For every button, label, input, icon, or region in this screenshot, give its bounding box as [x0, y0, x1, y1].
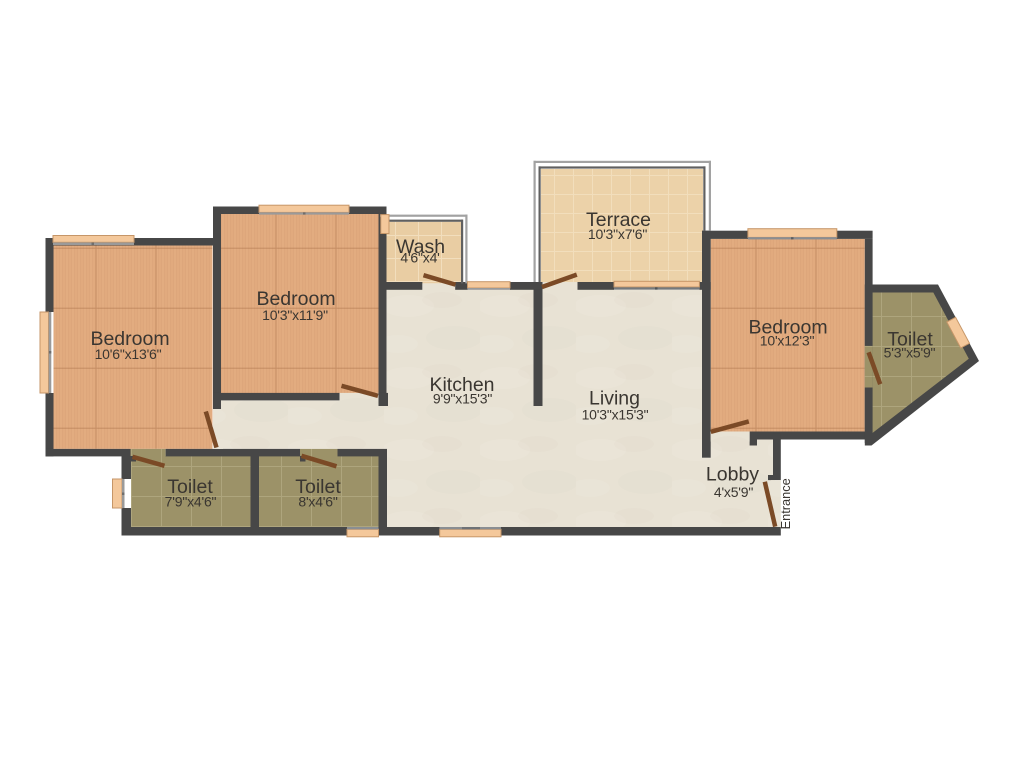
svg-text:9'9"x15'3": 9'9"x15'3": [433, 391, 492, 407]
svg-text:5'3"x5'9": 5'3"x5'9": [884, 345, 936, 361]
svg-text:8'x4'6": 8'x4'6": [298, 494, 338, 510]
svg-text:10'3"x15'3": 10'3"x15'3": [582, 407, 649, 423]
svg-text:Entrance: Entrance: [778, 478, 793, 529]
svg-text:10'6"x13'6": 10'6"x13'6": [95, 346, 162, 362]
svg-text:4'x5'9": 4'x5'9": [714, 484, 754, 500]
svg-text:4'6"x4': 4'6"x4': [400, 250, 439, 266]
svg-text:7'9"x4'6": 7'9"x4'6": [165, 494, 217, 510]
svg-text:10'3"x11'9": 10'3"x11'9": [262, 307, 328, 323]
svg-text:Lobby: Lobby: [706, 464, 759, 486]
svg-text:10'x12'3": 10'x12'3": [760, 333, 815, 349]
svg-text:10'3"x7'6": 10'3"x7'6": [588, 226, 647, 242]
